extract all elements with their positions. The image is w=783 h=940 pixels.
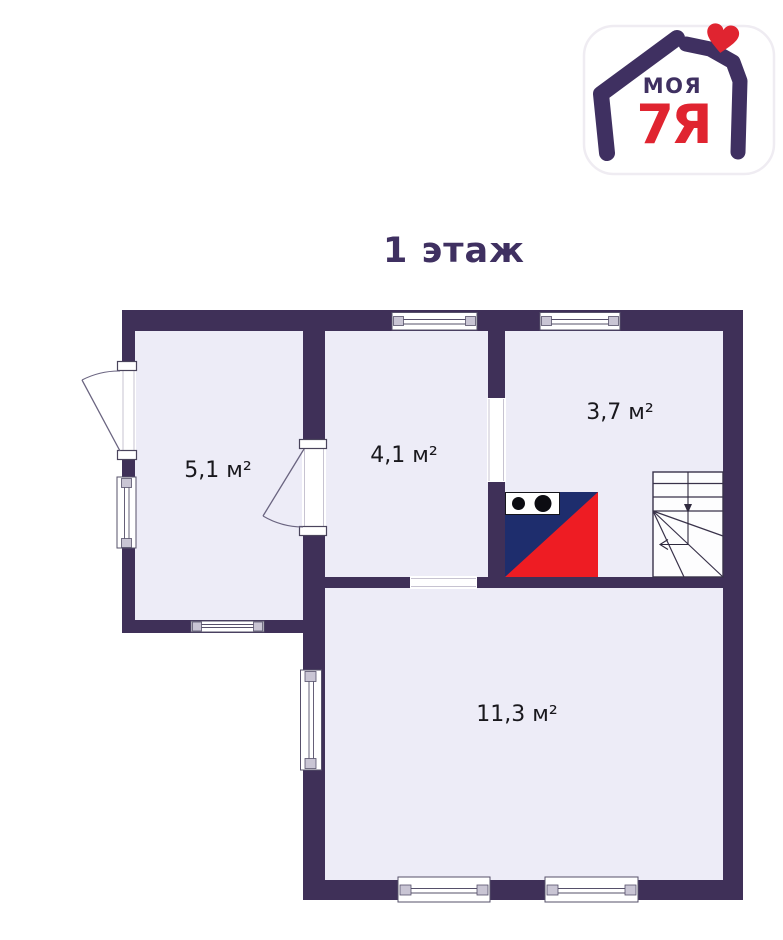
window-room4-left [301,670,322,770]
window-top-left [392,313,477,331]
room-area-label-1: 5,1 м² [148,457,288,484]
window-bottom-right [545,877,638,902]
door-jamb [300,527,327,536]
floor-title: 1 этаж [291,229,617,273]
stove-burner [512,497,525,510]
door-swing-arc [82,371,120,380]
door-jamb [118,362,137,371]
room-area-label-4: 11,3 м² [447,701,587,728]
wall-bottom [303,880,743,900]
door-jamb [118,451,137,460]
wall-inner-vertical-1 [303,331,325,880]
window-top-right [540,313,620,331]
floor-plan-page: 1 этаж МОЯ 7Я 5,1 м² 4,1 м² 3,7 м² 11,3 … [0,0,783,940]
wall-inner-middle [303,577,723,588]
exterior-door [82,362,137,460]
door-leaf [82,380,120,451]
stove-icon [505,492,598,577]
window-room1-bottom [191,621,264,632]
wall-left [122,310,135,633]
room-area-label-3: 3,7 м² [550,399,690,426]
opening-room2-room4 [410,576,477,589]
door-jamb [300,440,327,449]
wall-right [723,310,743,900]
window-room1-left [117,477,136,548]
stairs-icon [653,472,723,577]
room-area-label-2: 4,1 м² [334,442,474,469]
window-bottom-left [398,877,490,902]
stove-burner [535,495,552,512]
logo-text-bottom: 7Я [608,94,738,156]
opening-room2-room3 [487,398,506,482]
